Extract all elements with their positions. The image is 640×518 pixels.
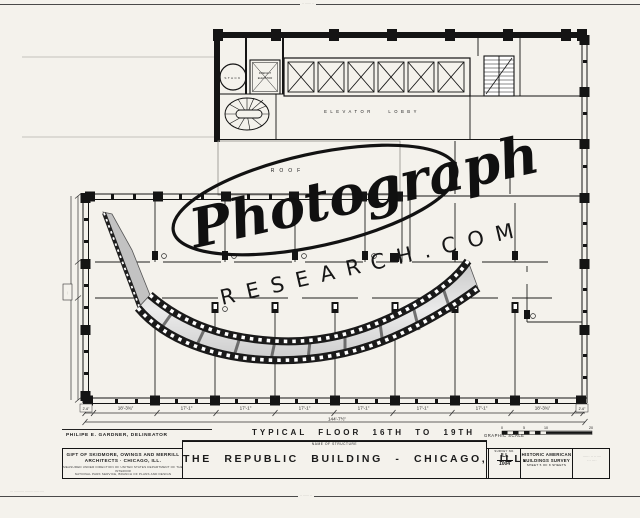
spiral-stair bbox=[225, 94, 276, 139]
right-note-cell: ······ ·· ······ ··· ···· bbox=[572, 449, 611, 478]
property-lines bbox=[22, 57, 214, 137]
svg-text:10: 10 bbox=[544, 426, 548, 430]
svg-text:17'-1": 17'-1" bbox=[240, 406, 252, 411]
overall-dimension: 144'-7½" bbox=[328, 416, 346, 422]
structure-name-box: NAME OF STRUCTURE THE REPUBLIC BUILDING … bbox=[182, 441, 487, 479]
svg-text:17'-1": 17'-1" bbox=[299, 406, 311, 411]
svg-text:0: 0 bbox=[501, 426, 503, 430]
northeast-stair bbox=[484, 56, 514, 96]
floor-title: TYPICAL FLOOR 16TH TO 19TH bbox=[252, 428, 475, 437]
habs-drawing-sheet: ·· ······ ·· ··· ·········· ········ ···… bbox=[0, 0, 640, 518]
structure-name: THE REPUBLIC BUILDING - CHICAGO, ILL. bbox=[183, 453, 486, 465]
elevator-bank bbox=[284, 58, 470, 96]
structure-name-header: NAME OF STRUCTURE bbox=[183, 442, 486, 447]
svg-text:17'-1": 17'-1" bbox=[358, 406, 370, 411]
right-note-line2: ··· ···· bbox=[573, 459, 611, 463]
svg-text:17'-1": 17'-1" bbox=[476, 406, 488, 411]
freight-label-1: FREIGHT bbox=[259, 71, 272, 75]
delineator-credit: PHILIPE E. GARDNER, DELINEATOR bbox=[66, 433, 168, 438]
svg-text:18'-3¾": 18'-3¾" bbox=[535, 406, 551, 411]
svg-text:5: 5 bbox=[523, 426, 525, 430]
dim-end-left: 2'-6" bbox=[83, 407, 91, 411]
elevator-lobby-label: ELEVATOR LOBBY bbox=[324, 109, 420, 114]
svg-text:18'-3¾": 18'-3¾" bbox=[118, 406, 134, 411]
svg-text:17'-1": 17'-1" bbox=[181, 406, 193, 411]
svg-text:20: 20 bbox=[589, 426, 593, 430]
credit-cell: GIFT OF SKIDMORE, OWINGS AND MERRILL ARC… bbox=[63, 449, 183, 478]
credit-line4: NATIONAL PARK SERVICE, BRANCH OF PLANS A… bbox=[63, 473, 183, 477]
credit-line2: ARCHITECTS · CHICAGO, ILL. bbox=[63, 458, 183, 464]
delineator-overline bbox=[62, 429, 212, 430]
watermark: Photograph RESEARCH.COM bbox=[163, 121, 544, 310]
dim-end-right: 2'-6" bbox=[579, 407, 587, 411]
stack-label: STACK bbox=[224, 76, 241, 80]
graphic-scale: GRAPHIC SCALE 0 5 10 20 bbox=[484, 426, 593, 438]
freight-label-2: ELEVATOR bbox=[258, 76, 272, 80]
svg-text:17'-1": 17'-1" bbox=[417, 406, 429, 411]
left-dim-label: ··· bbox=[66, 292, 70, 295]
freight-elevator: FREIGHT ELEVATOR bbox=[250, 60, 280, 94]
